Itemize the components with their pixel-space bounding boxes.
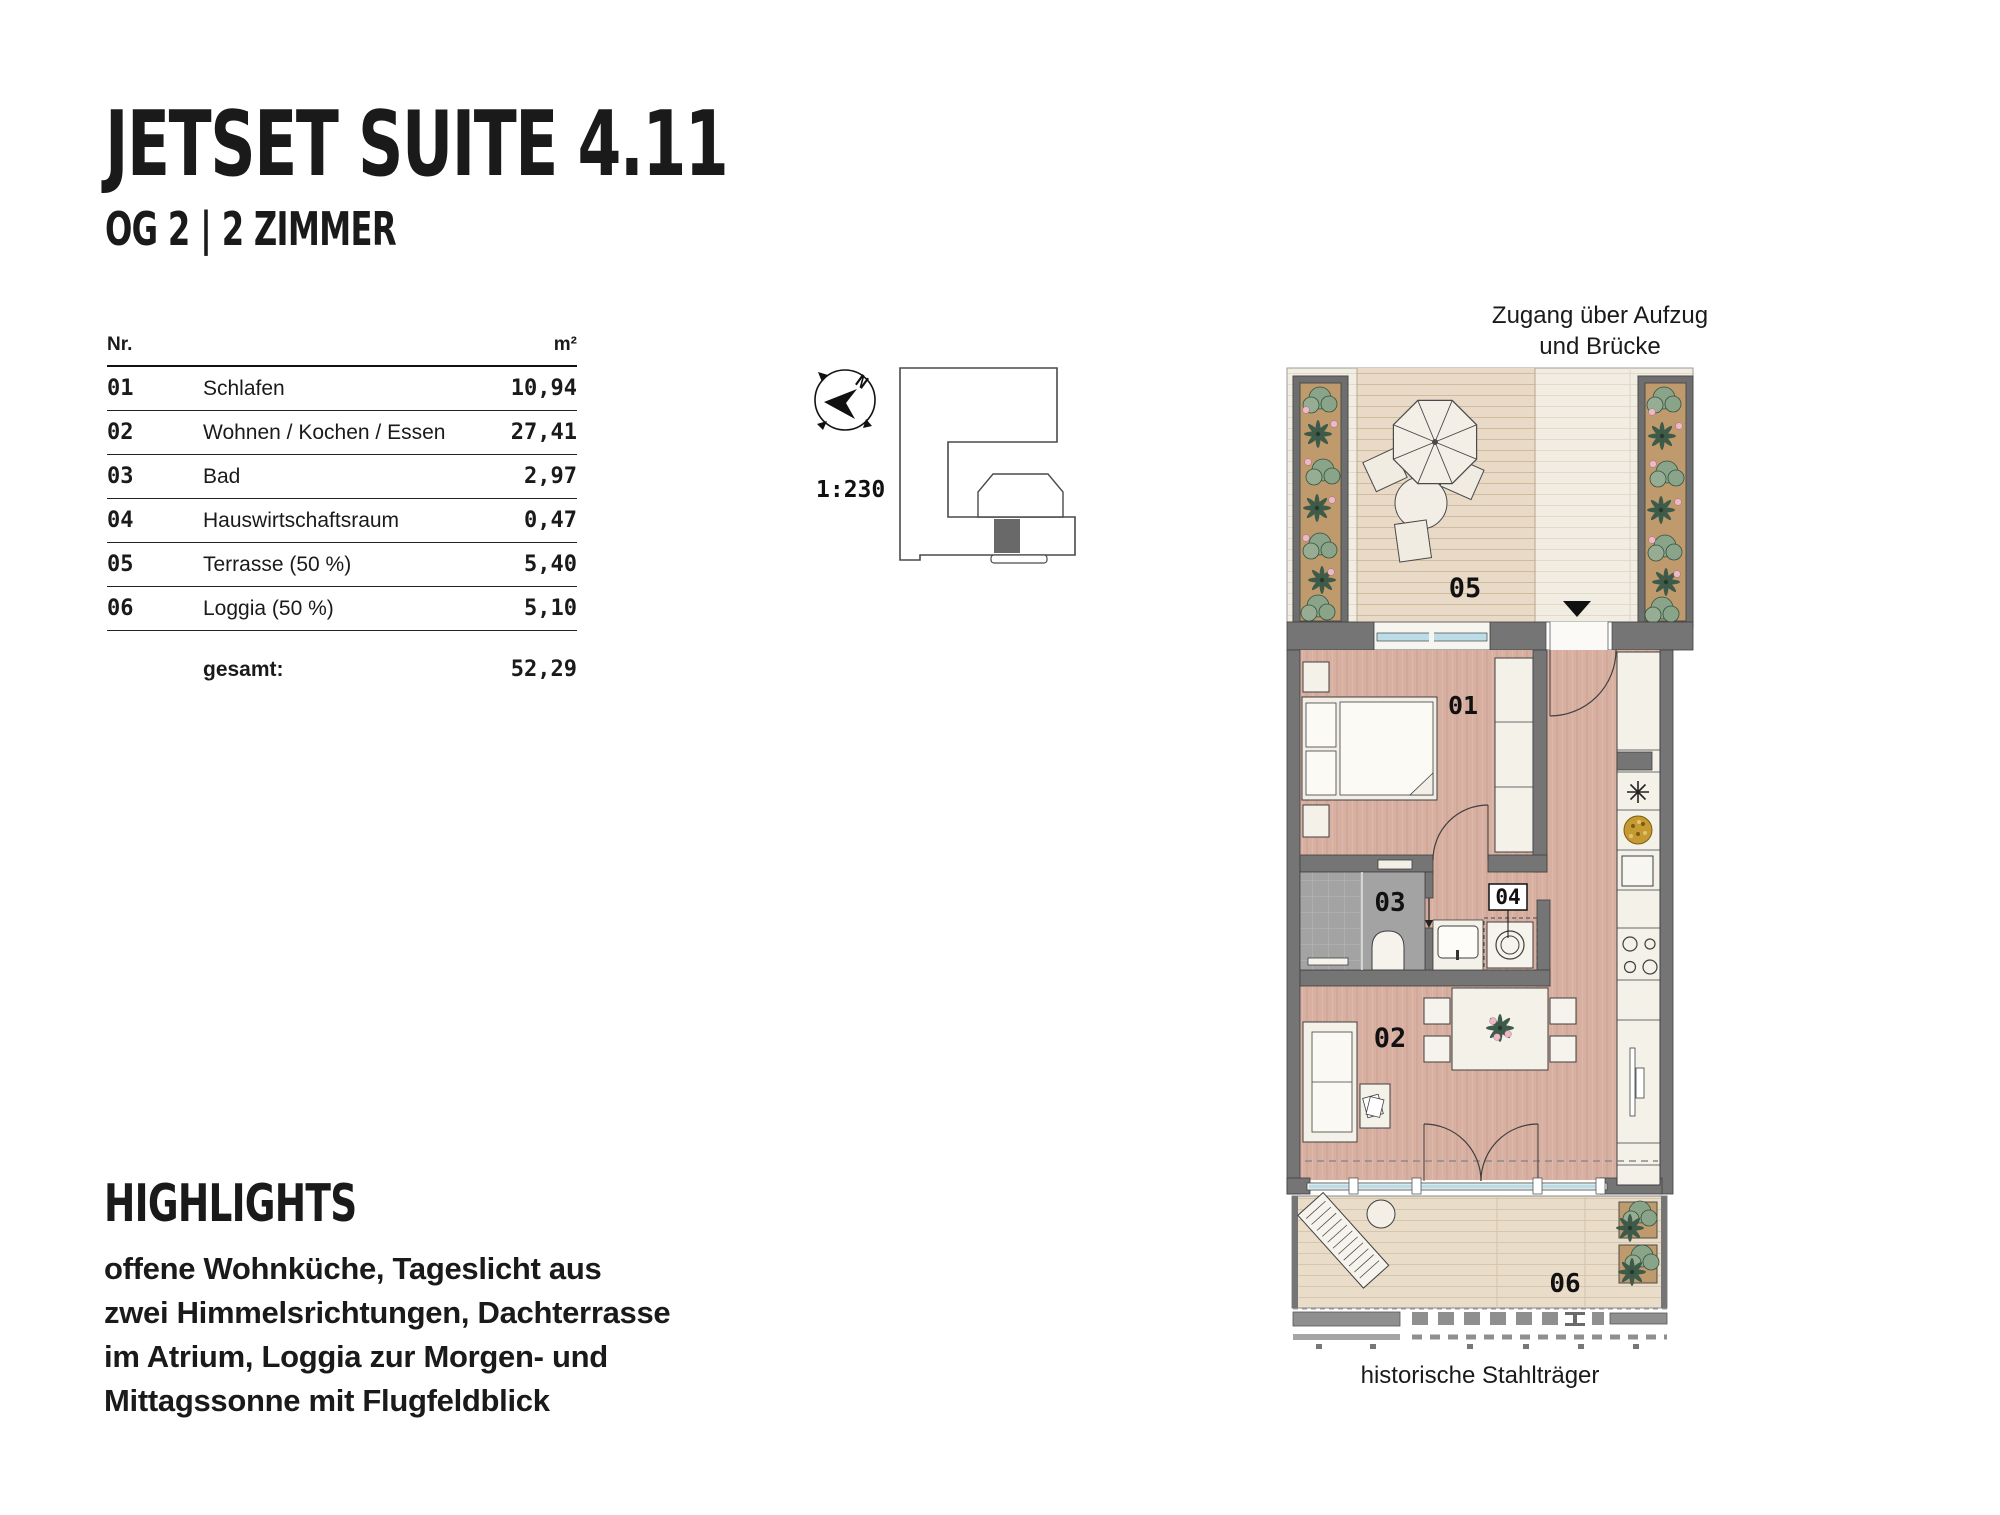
room-name: Wohnen / Kochen / Essen bbox=[203, 421, 511, 445]
shower bbox=[1300, 872, 1362, 970]
nightstand bbox=[1303, 805, 1329, 837]
parasol bbox=[1393, 400, 1476, 483]
terrace-label: 05 bbox=[1449, 573, 1482, 604]
table-row: 03 Bad 2,97 bbox=[107, 455, 577, 499]
bed bbox=[1302, 697, 1437, 800]
living-label: 02 bbox=[1374, 1023, 1407, 1054]
room-sqm: 5,10 bbox=[524, 596, 577, 621]
total-value: 52,29 bbox=[511, 657, 577, 682]
utility-label: 04 bbox=[1495, 885, 1520, 909]
table-row: 01 Schlafen 10,94 bbox=[107, 367, 577, 411]
scale-label: 1:230 bbox=[816, 477, 885, 503]
floor-plan: 05 bbox=[1270, 360, 1750, 1350]
sofa bbox=[1303, 1022, 1357, 1142]
table-row: 05 Terrasse (50 %) 5,40 bbox=[107, 543, 577, 587]
toilet bbox=[1372, 931, 1404, 970]
unit-location-marker bbox=[994, 519, 1020, 553]
site-outline bbox=[900, 368, 1075, 563]
page-subtitle: OG 2 | 2 ZIMMER bbox=[105, 206, 396, 252]
facade-wall-top bbox=[1287, 622, 1693, 650]
wall-shelf bbox=[1378, 860, 1412, 869]
steel-beams bbox=[1293, 1309, 1667, 1349]
wall-niche bbox=[1617, 752, 1652, 770]
loggia-planter bbox=[1618, 1245, 1659, 1286]
planter-right bbox=[1638, 376, 1693, 628]
i-beam-icon bbox=[1565, 1312, 1585, 1326]
room-name: Hauswirtschaftsraum bbox=[203, 509, 524, 533]
dining-chair bbox=[1550, 998, 1576, 1024]
room-name: Loggia (50 %) bbox=[203, 597, 524, 621]
bathroom: 03 bbox=[1300, 860, 1433, 970]
highlights-heading: HIGHLIGHTS bbox=[104, 1178, 622, 1230]
site-key: N 1:230 bbox=[790, 340, 1100, 575]
bedroom-window bbox=[1374, 622, 1490, 650]
wardrobe bbox=[1495, 658, 1533, 852]
loggia-label: 06 bbox=[1549, 1269, 1580, 1299]
planter-left bbox=[1293, 376, 1348, 628]
access-note: Zugang über Aufzug und Brücke bbox=[1470, 300, 1730, 362]
room-sqm: 2,97 bbox=[524, 464, 577, 489]
towel-rail bbox=[1308, 958, 1348, 965]
tower-footprint bbox=[978, 474, 1063, 517]
room-nr: 01 bbox=[107, 376, 203, 401]
table-total-row: gesamt: 52,29 bbox=[107, 657, 577, 682]
highlights-section: HIGHLIGHTS offene Wohnküche, Tageslicht … bbox=[104, 1178, 824, 1423]
bath-label: 03 bbox=[1374, 888, 1405, 918]
table-row: 06 Loggia (50 %) 5,10 bbox=[107, 587, 577, 631]
oven bbox=[1622, 856, 1653, 886]
col-nr: Nr. bbox=[107, 334, 132, 356]
side-table bbox=[1367, 1200, 1395, 1228]
terrace: 05 bbox=[1287, 368, 1693, 628]
room-nr: 02 bbox=[107, 420, 203, 445]
north-compass-icon: N bbox=[815, 370, 875, 430]
terrace-chair bbox=[1395, 520, 1432, 562]
table-plant bbox=[1486, 1014, 1514, 1042]
bedroom-label: 01 bbox=[1448, 691, 1478, 720]
room-nr: 06 bbox=[107, 596, 203, 621]
room-name: Schlafen bbox=[203, 377, 511, 401]
fruit-bowl bbox=[1624, 816, 1652, 844]
area-table: Nr. m² 01 Schlafen 10,94 02 Wohnen / Koc… bbox=[107, 334, 577, 682]
apartment: 01 bbox=[1287, 650, 1673, 1194]
total-label: gesamt: bbox=[203, 658, 511, 682]
kitchen bbox=[1617, 652, 1660, 1185]
table-header: Nr. m² bbox=[107, 334, 577, 367]
highlights-text: offene Wohnküche, Tageslicht aus zwei Hi… bbox=[104, 1247, 824, 1423]
facade-glazing-bottom bbox=[1307, 1178, 1607, 1194]
page-title: JETSET SUITE 4.11 bbox=[105, 100, 727, 190]
room-sqm: 5,40 bbox=[524, 552, 577, 577]
dining-chair bbox=[1424, 998, 1450, 1024]
loggia-planter bbox=[1616, 1201, 1657, 1242]
col-sqm: m² bbox=[554, 334, 577, 356]
room-nr: 03 bbox=[107, 464, 203, 489]
loggia: 06 bbox=[1292, 1193, 1667, 1308]
dining-chair bbox=[1550, 1036, 1576, 1062]
room-name: Terrasse (50 %) bbox=[203, 553, 524, 577]
room-sqm: 10,94 bbox=[511, 376, 577, 401]
room-nr: 05 bbox=[107, 552, 203, 577]
washing-machine bbox=[1487, 922, 1533, 968]
table-row: 02 Wohnen / Kochen / Essen 27,41 bbox=[107, 411, 577, 455]
room-sqm: 0,47 bbox=[524, 508, 577, 533]
brochure-page: JETSET SUITE 4.11 OG 2 | 2 ZIMMER Nr. m²… bbox=[0, 0, 2000, 1515]
nightstand bbox=[1303, 662, 1329, 692]
room-sqm: 27,41 bbox=[511, 420, 577, 445]
table-row: 04 Hauswirtschaftsraum 0,47 bbox=[107, 499, 577, 543]
steel-beams-caption: historische Stahlträger bbox=[1330, 1362, 1630, 1390]
room-nr: 04 bbox=[107, 508, 203, 533]
pillow bbox=[1306, 751, 1336, 795]
room-name: Bad bbox=[203, 465, 524, 489]
coffee-table bbox=[1360, 1084, 1390, 1128]
entry-door-opening bbox=[1546, 622, 1612, 650]
dining-chair bbox=[1424, 1036, 1450, 1062]
pillow bbox=[1306, 703, 1336, 747]
